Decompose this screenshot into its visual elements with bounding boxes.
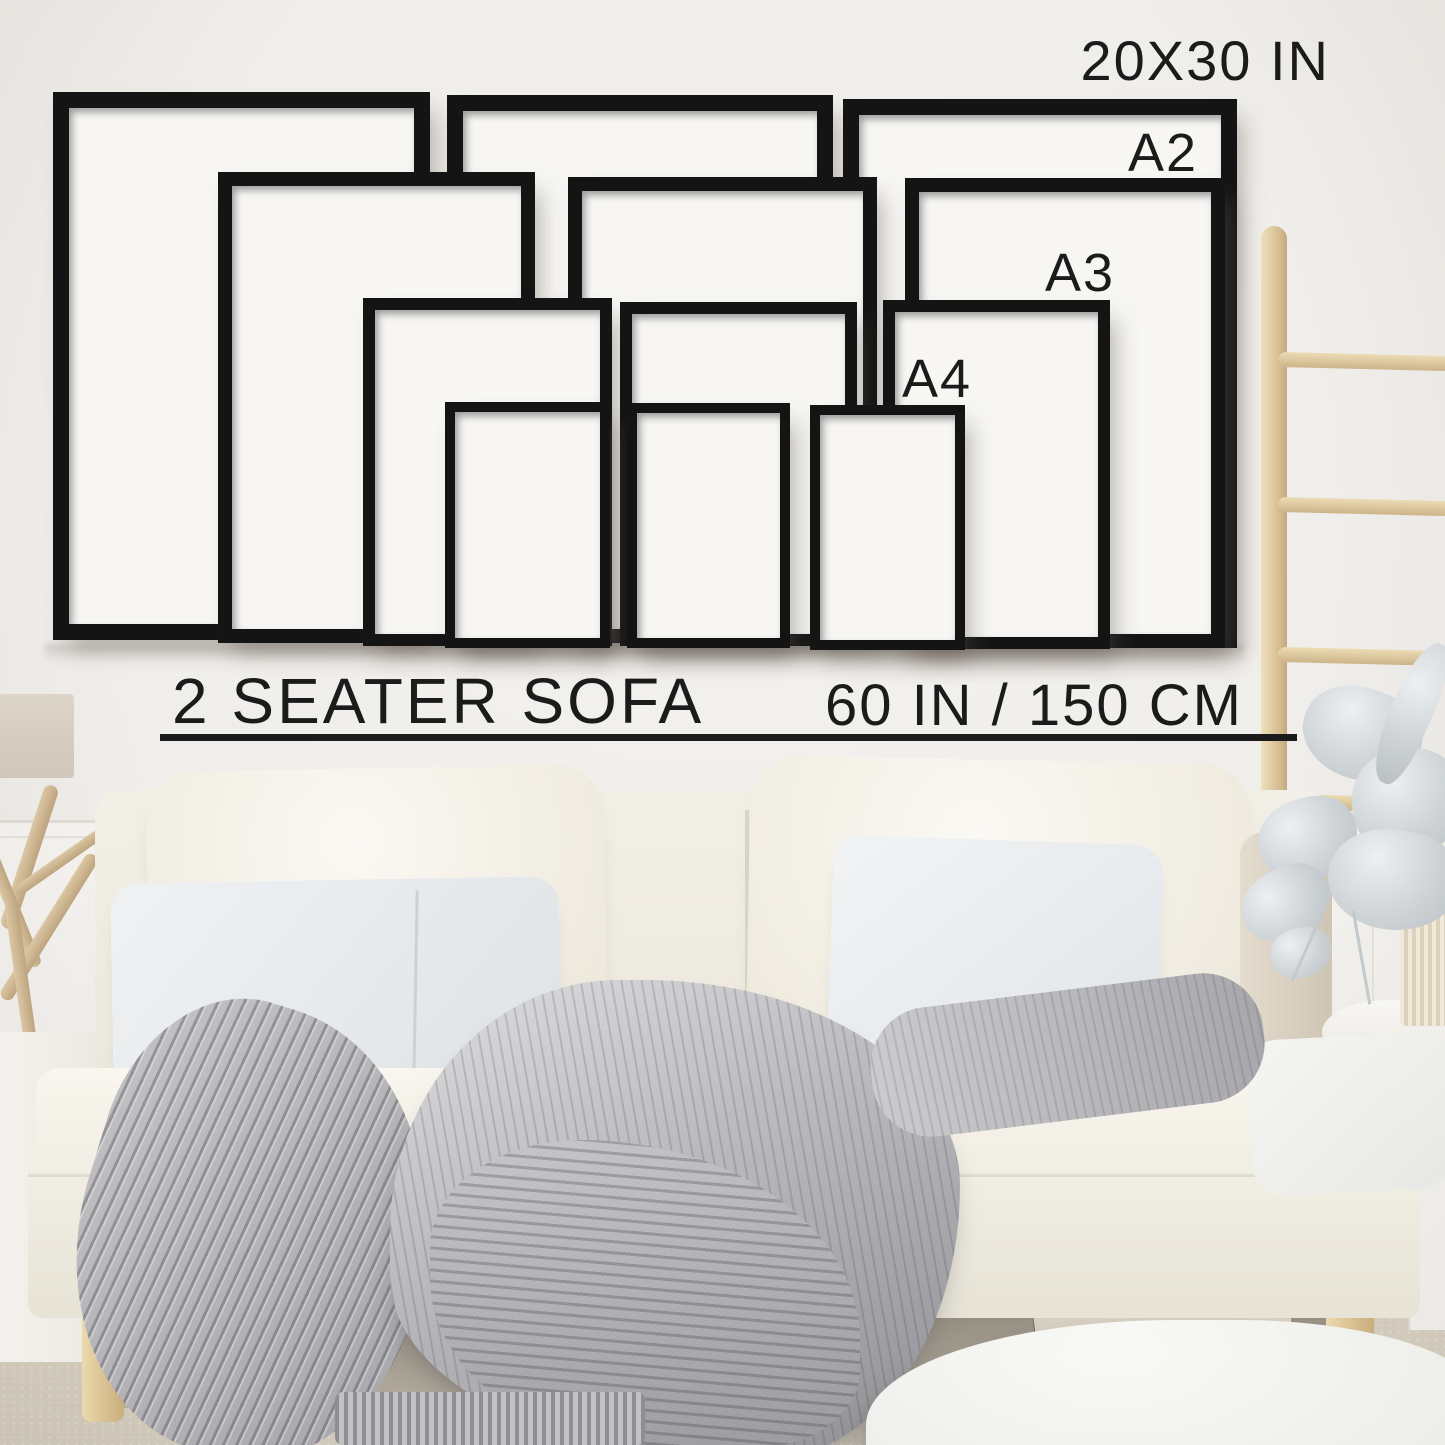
pillow-seam [412, 891, 418, 1087]
sofa-type-label: 2 SEATER SOFA [172, 664, 704, 738]
frame-a4-center [627, 403, 790, 648]
sofa-width-underline [160, 734, 1297, 741]
frame-size-label-20x30: 20X30 IN [1081, 28, 1331, 93]
frame-size-guide-image: 20X30 IN A2 A3 A4 2 SEATER SOFA 60 IN / … [0, 0, 1445, 1445]
frame-size-label-a2: A2 [1128, 122, 1198, 184]
sofa-width-label: 60 IN / 150 CM [825, 672, 1243, 739]
frame-a4-left [445, 402, 610, 648]
throw-pillow-far-right [1246, 1031, 1445, 1197]
frame-size-label-a4: A4 [902, 348, 972, 410]
frame-size-label-a3: A3 [1045, 242, 1115, 304]
knit-blanket-fringe [335, 1392, 645, 1445]
dried-flower-bouquet [1240, 680, 1445, 1040]
frame-a4-right [810, 405, 965, 650]
